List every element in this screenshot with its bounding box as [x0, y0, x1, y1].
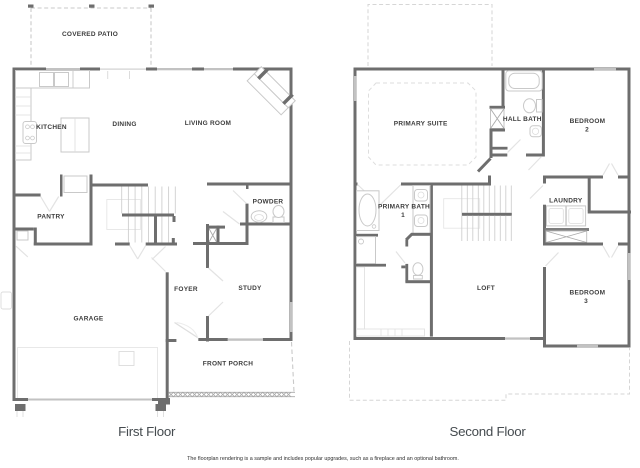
svg-text:FRONT PORCH: FRONT PORCH [203, 361, 253, 368]
svg-text:3: 3 [584, 298, 588, 305]
svg-text:GARAGE: GARAGE [73, 316, 103, 323]
svg-text:LAUNDRY: LAUNDRY [549, 198, 583, 205]
svg-text:PRIMARY BATH: PRIMARY BATH [378, 204, 430, 211]
svg-text:PRIMARY SUITE: PRIMARY SUITE [394, 121, 448, 128]
svg-text:LOFT: LOFT [477, 285, 495, 292]
svg-text:Second Floor: Second Floor [449, 424, 526, 439]
svg-text:BEDROOM: BEDROOM [570, 290, 606, 297]
svg-text:FOYER: FOYER [174, 286, 198, 293]
svg-text:LIVING ROOM: LIVING ROOM [185, 120, 231, 127]
svg-text:COVERED PATIO: COVERED PATIO [62, 31, 118, 38]
svg-text:1: 1 [401, 212, 405, 219]
svg-text:2: 2 [585, 127, 589, 134]
svg-text:First Floor: First Floor [118, 424, 176, 439]
svg-text:STUDY: STUDY [238, 285, 262, 292]
svg-text:PANTRY: PANTRY [37, 214, 65, 221]
svg-text:POWDER: POWDER [253, 199, 284, 206]
svg-text:The floorplan rendering is a s: The floorplan rendering is a sample and … [187, 456, 459, 462]
svg-text:DINING: DINING [112, 121, 136, 128]
svg-text:KITCHEN: KITCHEN [36, 124, 67, 131]
svg-text:BEDROOM: BEDROOM [570, 118, 606, 125]
svg-text:HALL BATH: HALL BATH [503, 116, 542, 123]
